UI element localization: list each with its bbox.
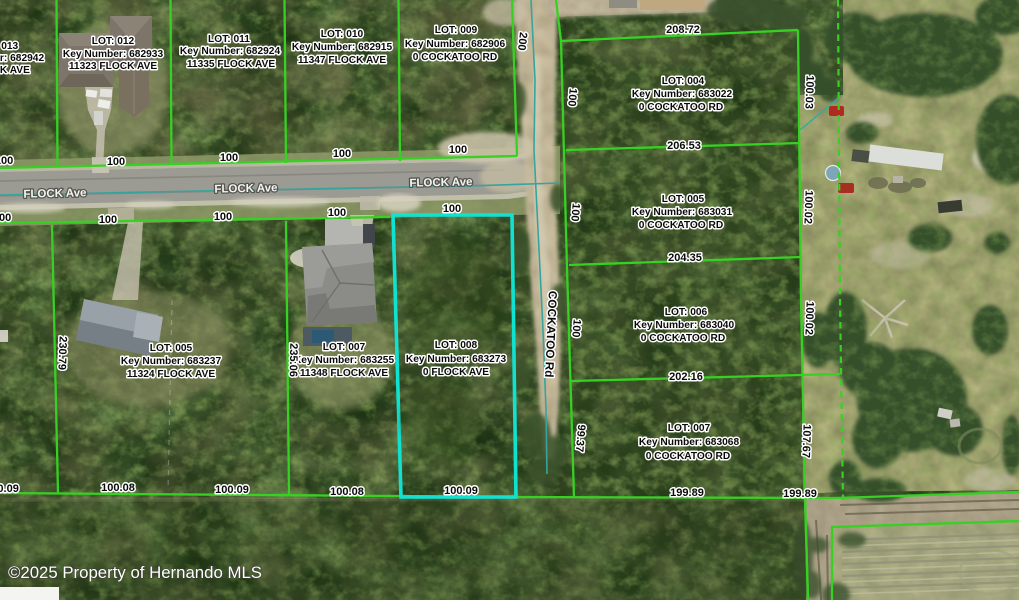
svg-text:100: 100 — [568, 203, 582, 222]
svg-text:100: 100 — [328, 207, 346, 219]
svg-text:100: 100 — [99, 214, 117, 226]
svg-text:0 FLOCK AVE: 0 FLOCK AVE — [423, 367, 489, 378]
svg-text:LOT: 004: LOT: 004 — [662, 76, 705, 87]
svg-text:Key Number: 682915: Key Number: 682915 — [292, 42, 393, 53]
svg-text:100.02: 100.02 — [802, 301, 815, 335]
svg-text:LOT: 005: LOT: 005 — [150, 343, 193, 354]
svg-text:202.16: 202.16 — [669, 371, 703, 383]
svg-text:199.89: 199.89 — [670, 487, 704, 499]
svg-text:11311 FLOCK AVE: 11311 FLOCK AVE — [0, 65, 30, 76]
svg-text:LOT: 008: LOT: 008 — [435, 340, 478, 351]
svg-text:11348 FLOCK AVE: 11348 FLOCK AVE — [300, 368, 389, 379]
svg-text:LOT: 012: LOT: 012 — [92, 36, 135, 47]
svg-text:FLOCK Ave: FLOCK Ave — [23, 187, 86, 200]
svg-text:LOT: 010: LOT: 010 — [321, 29, 364, 40]
svg-text:Key Number: 682924: Key Number: 682924 — [180, 46, 281, 57]
svg-text:Key Number: 683031: Key Number: 683031 — [632, 207, 733, 218]
svg-text:100: 100 — [0, 155, 13, 167]
svg-text:©2025 Property of Hernando MLS: ©2025 Property of Hernando MLS — [8, 563, 262, 582]
svg-text:100.09: 100.09 — [444, 485, 478, 497]
svg-text:100.03: 100.03 — [802, 75, 815, 109]
svg-text:Key Number: 683022: Key Number: 683022 — [632, 89, 733, 100]
svg-text:100.09: 100.09 — [215, 484, 249, 496]
svg-text:11347 FLOCK AVE: 11347 FLOCK AVE — [298, 55, 387, 66]
svg-text:100: 100 — [565, 88, 579, 107]
svg-text:100.09: 100.09 — [0, 483, 19, 495]
svg-text:Key Number: 683237: Key Number: 683237 — [121, 356, 222, 367]
svg-text:100: 100 — [0, 212, 11, 224]
svg-text:11335 FLOCK AVE: 11335 FLOCK AVE — [187, 59, 276, 70]
svg-text:206.53: 206.53 — [667, 140, 701, 152]
svg-text:100.02: 100.02 — [801, 190, 814, 224]
svg-text:0 COCKATOO RD: 0 COCKATOO RD — [646, 451, 731, 462]
svg-text:107.67: 107.67 — [799, 424, 812, 458]
svg-text:LOT: 007: LOT: 007 — [323, 342, 366, 353]
svg-text:100: 100 — [214, 211, 232, 223]
svg-text:100.08: 100.08 — [330, 486, 364, 498]
svg-text:11323 FLOCK AVE: 11323 FLOCK AVE — [69, 61, 158, 72]
svg-text:208.72: 208.72 — [666, 24, 700, 36]
svg-text:100: 100 — [443, 203, 461, 215]
svg-text:Key Number: 683040: Key Number: 683040 — [634, 320, 735, 331]
svg-text:200: 200 — [515, 32, 529, 52]
svg-text:LOT: 006: LOT: 006 — [665, 307, 708, 318]
svg-text:Key Number: 682942: Key Number: 682942 — [0, 53, 44, 64]
svg-text:100: 100 — [107, 156, 125, 168]
svg-text:LOT: 009: LOT: 009 — [435, 25, 478, 36]
svg-text:100: 100 — [220, 152, 238, 164]
svg-text:235.06: 235.06 — [287, 343, 300, 377]
svg-text:Key Number: 683068: Key Number: 683068 — [639, 437, 740, 448]
svg-text:FLOCK Ave: FLOCK Ave — [214, 182, 277, 195]
svg-text:11324 FLOCK AVE: 11324 FLOCK AVE — [127, 369, 216, 380]
svg-text:Key Number: 682933: Key Number: 682933 — [63, 49, 164, 60]
svg-text:0 COCKATOO RD: 0 COCKATOO RD — [413, 52, 498, 63]
svg-text:199.89: 199.89 — [783, 488, 817, 500]
svg-text:100: 100 — [333, 148, 351, 160]
svg-text:LOT: 007: LOT: 007 — [668, 423, 711, 434]
svg-text:Key Number: 683255: Key Number: 683255 — [294, 355, 395, 366]
svg-text:LOT: 005: LOT: 005 — [662, 194, 705, 205]
svg-text:0 COCKATOO RD: 0 COCKATOO RD — [639, 102, 724, 113]
svg-text:100.08: 100.08 — [101, 482, 135, 494]
svg-text:LOT: 011: LOT: 011 — [208, 34, 250, 45]
svg-text:0 COCKATOO RD: 0 COCKATOO RD — [641, 333, 726, 344]
svg-text:100: 100 — [449, 144, 467, 156]
svg-text:204.35: 204.35 — [668, 252, 702, 264]
svg-text:Key Number: 682906: Key Number: 682906 — [405, 39, 506, 50]
svg-text:FLOCK Ave: FLOCK Ave — [409, 176, 472, 189]
svg-text:0 COCKATOO RD: 0 COCKATOO RD — [639, 220, 724, 231]
svg-text:100: 100 — [569, 319, 583, 338]
svg-text:230.79: 230.79 — [55, 336, 68, 370]
svg-text:Key Number: 683273: Key Number: 683273 — [406, 354, 507, 365]
svg-text:99.37: 99.37 — [573, 424, 587, 452]
svg-text:LOT: 013: LOT: 013 — [0, 41, 19, 52]
